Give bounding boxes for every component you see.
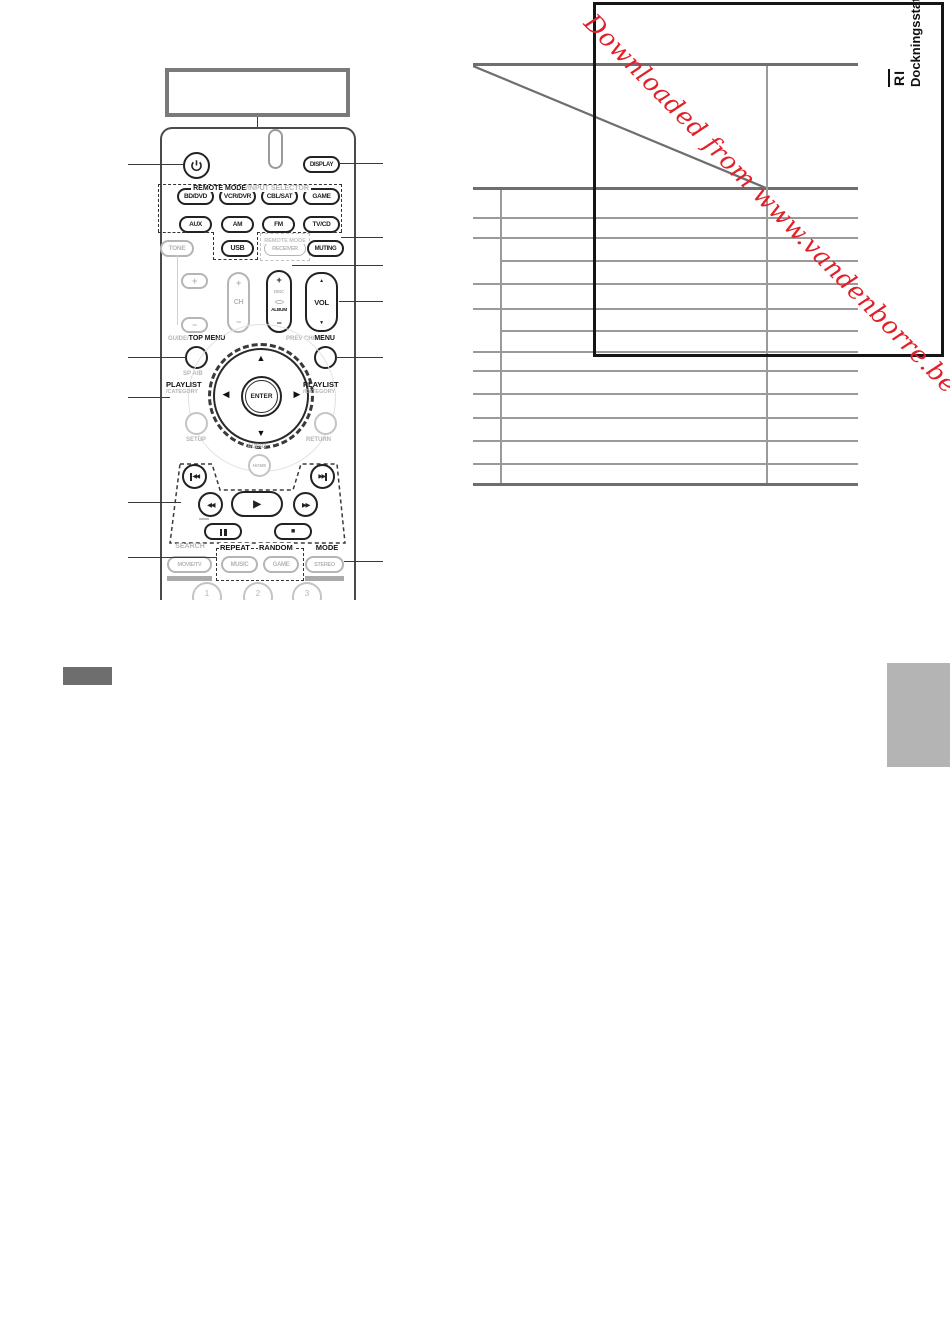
previous-track-button: ◀◀	[182, 464, 207, 489]
play-button: ▶	[231, 491, 283, 517]
playlist-right-label: PLAYLIST	[303, 380, 345, 389]
volume-down-icon: ▼	[319, 320, 324, 326]
display-label: DISPLAY	[310, 162, 333, 168]
table-row-line	[473, 370, 858, 372]
callout-muting	[341, 237, 383, 238]
movie-tv-label: MOVIE/TV	[178, 562, 202, 568]
fast-forward-icon: ▶▶	[302, 501, 309, 509]
dpad-left-icon: ◀	[219, 389, 233, 400]
muting-button: MUTING	[307, 240, 344, 257]
dpad-up-icon: ▲	[253, 353, 269, 363]
next-track-icon: ▶▶	[318, 473, 326, 481]
return-button	[314, 412, 337, 435]
callout-display	[339, 163, 383, 164]
section-marker-block	[63, 667, 112, 685]
remote-indicator-window	[268, 129, 283, 169]
disc-label: DISC	[274, 290, 284, 295]
stereo-highlight-bar	[305, 576, 344, 581]
tone-bracket-line	[177, 255, 178, 325]
setup-button	[185, 412, 208, 435]
callout-disc-album	[292, 265, 383, 266]
dpad-right-icon: ▶	[290, 389, 304, 400]
playlist-right-title: PLAYLIST /CATEGORY	[303, 380, 345, 395]
playlist-left-title: PLAYLIST /CATEGORY	[166, 380, 206, 395]
pause-icon	[219, 523, 228, 541]
setup-label: SETUP	[186, 437, 206, 443]
ch-plus-label: +	[236, 278, 241, 288]
rewind-button: ◀◀	[198, 492, 223, 517]
category-left-label: /CATEGORY	[166, 389, 206, 395]
movie-tv-highlight-bar	[167, 576, 212, 581]
tone-plus-button: +	[181, 273, 208, 289]
callout-menu	[336, 357, 383, 358]
pause-tick-mark	[199, 518, 209, 520]
music-label: MUSIC	[231, 562, 249, 568]
play-icon: ▶	[253, 499, 260, 510]
number-1-button: 1	[192, 582, 222, 600]
remote-mode-section-title: REMOTE MODE/INPUT SELECTOR	[163, 177, 339, 195]
home-button: HOME	[248, 454, 271, 477]
receiver-box-title-label: REMOTE MODE	[263, 238, 307, 244]
remote-label-box	[165, 68, 350, 117]
home-label: HOME	[253, 463, 267, 468]
callout-stereo	[344, 561, 383, 562]
ch-rocker: + CH −	[227, 272, 250, 333]
next-track-button: ▶▶	[310, 464, 335, 489]
category-right-label: /CATEGORY	[303, 389, 345, 395]
menu-label: MENU	[314, 335, 335, 342]
pause-button	[204, 523, 242, 540]
search-label: SEARCH	[170, 543, 210, 550]
music-button: MUSIC	[221, 556, 258, 573]
manual-page: 1 2 3 DISPLAY REMOTE MODE/INPUT SELECTOR…	[0, 0, 950, 1342]
tone-minus-button: −	[181, 317, 208, 333]
stereo-button: STEREO	[305, 556, 344, 573]
repeat-label: REPEAT	[219, 543, 251, 552]
power-button	[183, 152, 210, 179]
game-sound-label: GAME	[273, 562, 290, 568]
callout-transport	[128, 502, 181, 503]
stereo-label: STEREO	[314, 562, 335, 568]
callout-guide	[128, 357, 186, 358]
table-row-line	[473, 393, 858, 395]
number-3-button: 3	[292, 582, 322, 600]
volume-rocker: ▲ VOL ▼	[305, 272, 338, 332]
page-edge-tab	[887, 663, 950, 767]
usb-label: USB	[231, 245, 245, 252]
am-button: AM	[221, 216, 254, 233]
mode-label: MODE	[309, 543, 345, 552]
number-2-button: 2	[243, 582, 273, 600]
tone-label: TONE	[169, 245, 186, 252]
callout-playlist	[128, 397, 170, 398]
number-2-label: 2	[256, 589, 260, 598]
dpad-down-icon: ▼	[253, 428, 269, 438]
return-label: RETURN	[306, 437, 331, 443]
tv-cd-label: TV/CD	[312, 221, 330, 228]
fast-forward-button: ▶▶	[293, 492, 318, 517]
disc-plus-label: +	[277, 275, 282, 285]
guide-label-gray: GUIDE/	[168, 336, 189, 342]
number-1-label: 1	[205, 589, 209, 598]
volume-label: VOL	[314, 298, 329, 307]
receiver-box-title: REMOTE MODE	[260, 229, 310, 247]
album-label: ALBUM	[271, 308, 287, 313]
callout-repeat	[128, 557, 217, 558]
table-bottom-border	[473, 483, 858, 486]
tone-plus-label: +	[192, 276, 197, 286]
aux-button: AUX	[179, 216, 212, 233]
callout-power	[128, 164, 184, 165]
aux-label: AUX	[189, 221, 202, 228]
game-sound-button: GAME	[263, 556, 299, 573]
display-button: DISPLAY	[303, 156, 340, 173]
enter-button: ENTER	[241, 376, 282, 417]
ch-label: CH	[234, 299, 244, 306]
table-row-line	[473, 440, 858, 442]
usb-button: USB	[221, 240, 254, 257]
stop-icon: ■	[291, 528, 295, 535]
remote-mode-title-bold: REMOTE MODE	[193, 185, 246, 192]
number-3-label: 3	[305, 589, 309, 598]
enter-label: ENTER	[250, 393, 272, 400]
input-selector-title-gray: /INPUT SELECTOR	[246, 185, 309, 192]
table-row-line	[473, 463, 858, 465]
tone-minus-label: −	[192, 320, 197, 330]
rewind-icon: ◀◀	[207, 501, 214, 509]
previous-track-icon: ◀◀	[190, 473, 198, 481]
fm-label: FM	[274, 221, 283, 228]
am-label: AM	[233, 221, 243, 228]
random-label: RANDOM	[258, 543, 294, 552]
movie-tv-button: MOVIE/TV	[167, 556, 212, 573]
volume-up-icon: ▲	[319, 278, 324, 284]
ch-minus-label: −	[236, 317, 241, 327]
disc-oval-icon	[275, 300, 284, 304]
audio-label: AUDIO	[247, 444, 266, 450]
callout-volume	[339, 301, 383, 302]
stop-button: ■	[274, 523, 312, 540]
playlist-left-label: PLAYLIST	[166, 380, 206, 389]
table-row-line	[473, 417, 858, 419]
muting-label: MUTING	[315, 246, 337, 252]
power-icon	[190, 159, 203, 172]
